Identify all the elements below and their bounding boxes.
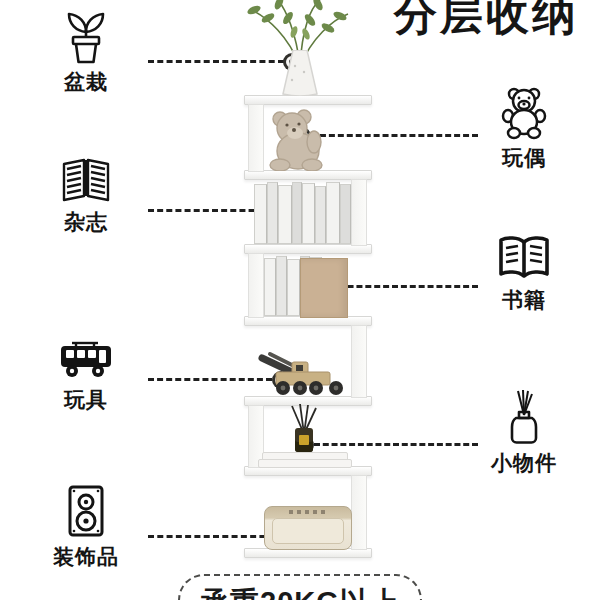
white-vase xyxy=(279,50,321,96)
callout-small-items: 小物件 xyxy=(468,389,580,477)
callout-decorations: 装饰品 xyxy=(30,483,142,571)
callout-potted-plant: 盆栽 xyxy=(30,10,142,96)
diffuser-bottle-item xyxy=(295,428,313,452)
book-slab xyxy=(258,459,352,468)
teddy-bear-item xyxy=(256,106,338,171)
toy-truck-item xyxy=(250,348,346,396)
reed-diffuser-icon xyxy=(503,389,545,445)
callout-label: 书籍 xyxy=(502,286,546,314)
shelf-wall xyxy=(351,475,367,550)
callout-toys: 玩具 xyxy=(30,334,142,414)
load-capacity-text: 承重20KG以上 xyxy=(200,583,400,600)
magazine-icon xyxy=(58,156,114,204)
callout-label: 杂志 xyxy=(64,208,108,236)
page-title: 分层收纳 xyxy=(394,0,578,44)
connector-small-items xyxy=(314,443,478,446)
speaker-icon xyxy=(63,483,109,539)
open-book-icon xyxy=(496,234,552,282)
shelf-wall xyxy=(351,179,367,246)
callout-label: 盆栽 xyxy=(64,68,108,96)
magazines-item xyxy=(254,184,351,244)
teddy-bear-icon xyxy=(498,84,550,140)
product-infographic: 分层收纳 盆栽 xyxy=(0,0,600,600)
callout-label: 玩具 xyxy=(64,386,108,414)
toy-bus-icon xyxy=(58,334,114,382)
shelf-wall xyxy=(351,325,367,398)
speaker-item xyxy=(264,506,352,550)
callout-label: 玩偶 xyxy=(502,144,546,172)
callout-magazine: 杂志 xyxy=(30,156,142,236)
callout-label: 装饰品 xyxy=(53,543,119,571)
callout-books: 书籍 xyxy=(468,234,580,314)
potted-plant-icon xyxy=(61,10,111,64)
shelf-wall xyxy=(248,253,264,318)
kraft-folder-item xyxy=(300,258,348,318)
callout-plush-toys: 玩偶 xyxy=(468,84,580,172)
callout-label: 小物件 xyxy=(491,449,557,477)
load-capacity-badge: 承重20KG以上 xyxy=(178,574,422,600)
